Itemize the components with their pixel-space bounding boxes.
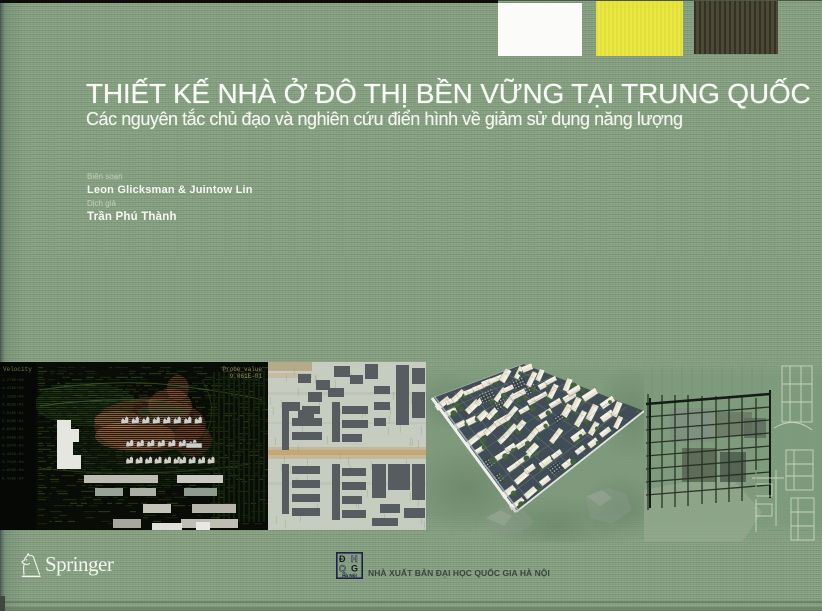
svg-text:Hà Nội: Hà Nội — [342, 573, 357, 578]
svg-text:4.003E-01: 4.003E-01 — [2, 428, 24, 432]
svg-text:9.597E-02: 9.597E-02 — [2, 445, 24, 449]
svg-text:1.478E+00: 1.478E+00 — [2, 387, 24, 391]
svg-text:3.752E-03: 3.752E-03 — [2, 461, 24, 465]
svg-text:1.421E-02: 1.421E-02 — [2, 453, 24, 457]
svg-text:G: G — [351, 563, 358, 573]
svg-text:Velocity: Velocity — [3, 366, 32, 373]
svg-text:2.049E-01: 2.049E-01 — [2, 436, 24, 440]
svg-text:Probe value: Probe value — [222, 366, 262, 373]
svg-text:7.910E-01: 7.910E-01 — [2, 412, 24, 416]
svg-text:9.863E-01: 9.863E-01 — [2, 404, 24, 408]
svg-text:1.773E+00: 1.773E+00 — [2, 379, 24, 383]
svg-text:9.420E-04: 9.420E-04 — [2, 477, 24, 481]
svg-text:5.956E-01: 5.956E-01 — [2, 420, 24, 424]
svg-text:Q: Q — [339, 563, 346, 573]
svg-text:9.061E-01: 9.061E-01 — [230, 373, 263, 380]
svg-text:1.850E-03: 1.850E-03 — [2, 469, 24, 473]
svg-text:1.182E+00: 1.182E+00 — [2, 395, 24, 399]
